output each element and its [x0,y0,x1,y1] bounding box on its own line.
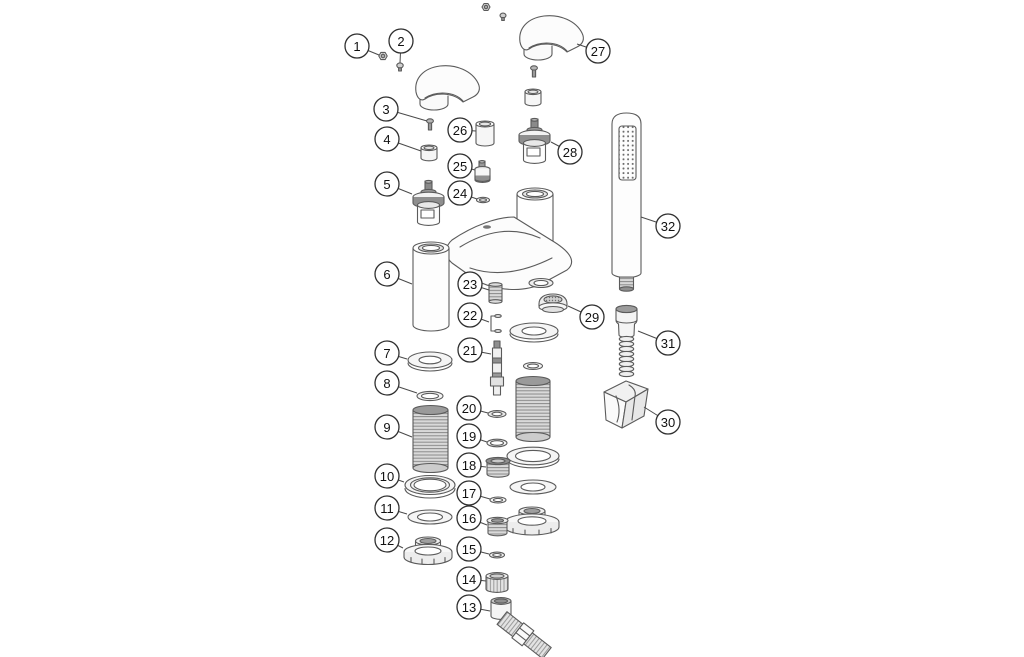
callout-number: 10 [380,469,394,484]
callout-number: 24 [453,186,467,201]
part-hose-connector-31 [616,305,637,376]
callout-number: 4 [383,132,390,147]
part-bush-18 [486,457,510,477]
callout-number: 11 [380,501,394,516]
part-cap-right [525,89,541,106]
callout-7: 7 [375,341,399,365]
part-screw-3 [427,119,434,130]
part-hex-nut-1 [379,52,387,59]
part-clip-22 [491,315,501,333]
callout-number: 31 [661,336,675,351]
part-cartridge-28 [519,118,550,163]
part-screw-2 [397,63,403,71]
callout-8: 8 [375,371,399,395]
callout-number: 12 [380,533,394,548]
callout-20: 20 [457,396,481,420]
callout-21: 21 [458,338,482,362]
callout-number: 28 [563,145,577,160]
part-oring-right-small [524,363,543,370]
part-bracket-30 [604,381,648,428]
part-elbow-hose-13 [491,598,553,657]
callout-28: 28 [558,140,582,164]
part-washer-11 [408,510,452,524]
callout-number: 13 [462,600,476,615]
part-washer-20 [488,411,506,418]
callout-number: 6 [383,267,390,282]
part-handle-left [416,66,480,110]
part-washer-24 [477,197,490,202]
callout-number: 25 [453,159,467,174]
callout-number: 17 [462,486,476,501]
callout-number: 2 [397,34,404,49]
part-nut-14 [486,573,508,593]
exploded-parts-diagram-page: 1234567891011121314151617181920212223242… [0,0,1024,657]
part-oring-8 [417,391,443,400]
part-shank-9 [413,406,448,473]
callout-10: 10 [375,464,399,488]
callout-number: 27 [591,44,605,59]
callout-number: 22 [463,308,477,323]
callout-12: 12 [375,528,399,552]
round-screw-icon [500,13,506,20]
part-washer-10 [405,476,455,499]
part-spout-washer [510,323,558,342]
part-spring-23 [489,283,502,304]
part-oring-17 [490,497,506,503]
callout-29: 29 [580,305,604,329]
callout-17: 17 [457,481,481,505]
part-washer-right-flat [510,480,556,494]
callout-4: 4 [375,127,399,151]
part-nut-right [505,507,559,535]
callout-3: 3 [374,97,398,121]
callout-number: 15 [462,542,476,557]
callout-number: 20 [462,401,476,416]
callout-27: 27 [586,39,610,63]
callout-25: 25 [448,154,472,178]
part-shank-right [516,377,550,442]
callout-14: 14 [457,567,481,591]
part-handset-32 [612,113,641,291]
parts-artwork [379,4,648,657]
callout-number: 21 [463,343,477,358]
hex-screw-icon [482,4,490,11]
part-bush-16 [487,517,508,536]
part-nut-12 [404,537,452,565]
callout-number: 18 [462,458,476,473]
callout-number: 30 [661,415,675,430]
part-cap-4 [421,145,437,161]
callout-18: 18 [457,453,481,477]
callout-number: 14 [462,572,476,587]
callout-9: 9 [375,415,399,439]
callout-30: 30 [656,410,680,434]
callout-15: 15 [457,537,481,561]
callout-number: 8 [383,376,390,391]
callout-number: 19 [462,429,476,444]
part-washer-right-oval [507,447,559,468]
callout-number: 5 [383,177,390,192]
callout-19: 19 [457,424,481,448]
callout-32: 32 [656,214,680,238]
part-aerator-29 [539,294,567,313]
part-diverter-rod-21 [491,341,504,395]
part-sleeve-26 [476,121,494,146]
callout-6: 6 [375,262,399,286]
callout-2: 2 [389,29,413,53]
callout-number: 16 [462,511,476,526]
callout-31: 31 [656,331,680,355]
callout-16: 16 [457,506,481,530]
callout-24: 24 [448,181,472,205]
callout-number: 7 [383,346,390,361]
callout-13: 13 [457,595,481,619]
callout-26: 26 [448,118,472,142]
part-oring-19 [487,439,507,447]
callout-number: 23 [463,277,477,292]
callout-number: 3 [382,102,389,117]
callout-number: 29 [585,310,599,325]
callout-23: 23 [458,272,482,296]
callout-number: 1 [353,39,360,54]
part-screw-right [531,66,538,77]
callout-11: 11 [375,496,399,520]
exploded-diagram-canvas: 1234567891011121314151617181920212223242… [0,0,1024,657]
part-oring-15 [490,552,505,558]
callout-1: 1 [345,34,369,58]
callout-number: 26 [453,123,467,138]
callout-number: 32 [661,219,675,234]
callout-22: 22 [458,303,482,327]
part-handle-27 [520,16,584,60]
part-valve-25 [475,161,490,183]
callout-number: 9 [383,420,390,435]
part-washer-7 [408,352,452,371]
callout-5: 5 [375,172,399,196]
part-cartridge-5 [413,180,444,225]
